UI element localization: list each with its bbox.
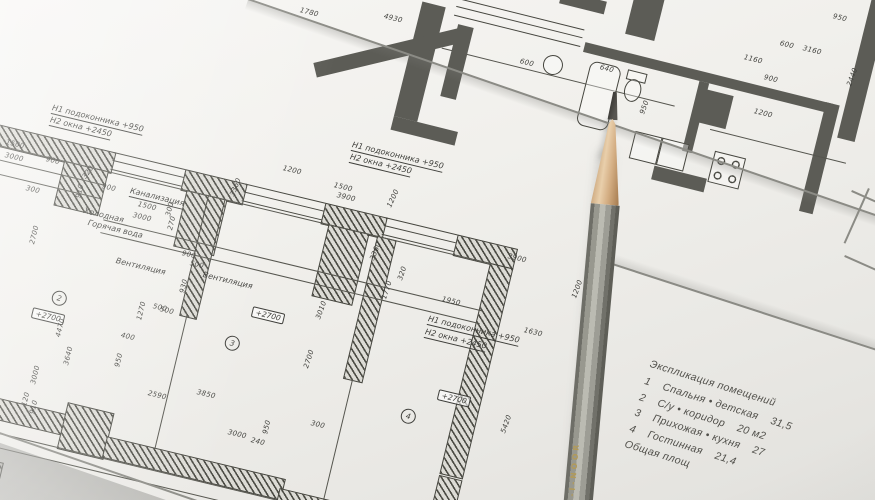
room-number: 4: [628, 422, 641, 436]
dimension-label: 950: [261, 419, 272, 435]
dimension-label: 3360: [228, 177, 243, 198]
dimension-label: 240: [250, 436, 266, 447]
dimension-label: 5420: [499, 414, 513, 435]
dimension-label: 3000: [227, 428, 247, 440]
dimension-label: 1950: [441, 295, 461, 307]
dimension-label: 1200: [385, 188, 400, 209]
room-area: 27: [751, 444, 767, 459]
room-number-badge: 3: [223, 334, 241, 352]
dimension-label: 900: [45, 155, 61, 166]
dimension-label: 3010: [314, 300, 328, 321]
dimension-label: 910: [74, 183, 85, 199]
dimension-label: 4930: [383, 12, 403, 24]
pencil-graphite-tip: [607, 92, 619, 121]
dimension-label: 910: [28, 399, 39, 415]
dimension-label: 3000: [132, 211, 152, 223]
dimension-label: 900: [101, 182, 117, 193]
dimension-label: 2590: [147, 389, 167, 401]
room-area: 21,4: [713, 449, 738, 467]
room-number-badge: 4: [399, 407, 417, 425]
dimension-label: 600: [519, 57, 535, 68]
dimension-label: 3000: [4, 151, 24, 163]
dimension-label: 1270: [135, 301, 147, 321]
pencil-wood-cone: [591, 118, 627, 206]
dimension-label: 2440: [845, 67, 859, 88]
dimension-label: 2700: [28, 225, 40, 245]
dimension-label: 1770: [380, 280, 393, 301]
plan-label: Вентиляция: [115, 256, 167, 277]
dimension-label: 300: [25, 184, 41, 195]
room-number: 1: [643, 375, 656, 389]
dimension-label: 900: [181, 249, 197, 260]
dimension-label: 270: [166, 215, 177, 231]
dimension-label: 640: [599, 63, 615, 74]
dimension-label: 3160: [802, 44, 822, 56]
dimension-label: 1160: [743, 53, 763, 65]
dimension-label: 300: [310, 419, 326, 430]
room-number-badge: 2: [50, 289, 68, 307]
dimension-label: 2700: [302, 349, 315, 370]
ceiling-height-badge: +2700: [251, 306, 286, 324]
dimension-label: 1500: [5, 138, 25, 150]
dimension-label: 500: [189, 259, 205, 270]
room-number: 2: [638, 391, 651, 405]
dimension-label: 320: [81, 164, 96, 180]
dimension-label: 3640: [62, 346, 74, 366]
dimension-label: 950: [832, 12, 848, 23]
dimension-label: 1630: [523, 326, 543, 338]
dimension-label: 500: [152, 302, 168, 313]
dimension-label: 1200: [753, 107, 773, 119]
dimension-label: 3360: [368, 241, 383, 262]
ceiling-height-badge: +2700: [437, 389, 472, 407]
dimension-label: 1780: [299, 6, 319, 18]
dimension-label: 400: [120, 331, 136, 342]
dimension-label: 3900: [507, 252, 527, 264]
blueprint-photo: 15003000900300320910900Канализация150030…: [0, 0, 875, 500]
dimension-label: 950: [638, 99, 650, 115]
dimension-label: 1200: [282, 164, 302, 176]
dimension-label: 3850: [196, 388, 216, 400]
dimension-label: 930: [178, 278, 189, 294]
dimension-label: 320: [396, 265, 408, 281]
dimension-label: 3900: [336, 191, 356, 203]
dimension-label: 950: [113, 352, 124, 368]
dimension-label: 600: [779, 39, 795, 50]
pencil-brand-text: KOH-I-NOOR: [564, 442, 580, 500]
plan-label: Вентиляция: [202, 270, 254, 291]
room-area: 31,5: [769, 415, 794, 433]
dimension-label: 900: [763, 73, 779, 84]
room-number: 3: [633, 407, 646, 421]
dimension-label: 3000: [29, 365, 41, 385]
